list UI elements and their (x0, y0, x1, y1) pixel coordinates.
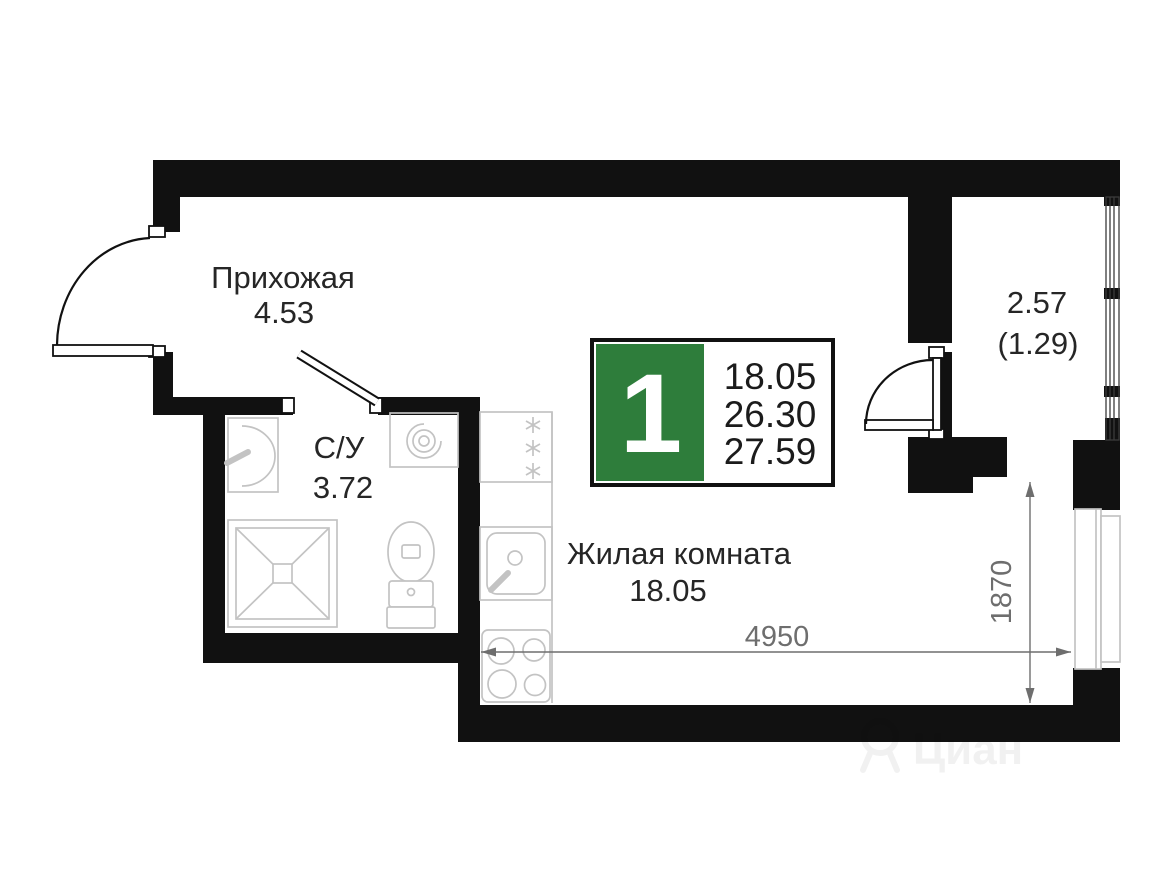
balcony-area: 2.57 (1007, 285, 1067, 320)
wall-below-balcony (908, 437, 1007, 477)
floor-plan-page: Прихожая 4.53 С/У 3.72 Жилая комната 18.… (0, 0, 1173, 880)
door-swing-arc (57, 238, 150, 345)
door-jamb (149, 226, 165, 237)
door-frame (933, 358, 941, 430)
dimension-arrow-right (1056, 648, 1071, 657)
washing-machine-icon (390, 413, 458, 467)
window-icon (1075, 509, 1120, 669)
door-jamb (282, 398, 294, 413)
dimension-arrow-down (1026, 688, 1035, 703)
floor-plan: Прихожая 4.53 С/У 3.72 Жилая комната 18.… (0, 0, 1173, 880)
dimension-arrow-up (1026, 482, 1035, 497)
bathroom-door-icon (282, 354, 382, 413)
info-badge-rooms-count: 1 (620, 351, 682, 476)
info-badge: 1 18.05 26.30 27.59 (592, 340, 833, 485)
dimension-horizontal-value: 4950 (745, 621, 810, 653)
washbasin-icon (227, 418, 278, 492)
toilet-icon (387, 522, 435, 628)
dimension-horizontal: 4950 (481, 621, 1071, 657)
hallway-label: Прихожая (211, 260, 355, 295)
dimension-vertical-value: 1870 (986, 560, 1018, 625)
glazing-frame (1106, 197, 1119, 440)
living-room-area: 18.05 (629, 573, 707, 608)
window-pane-inner (1075, 509, 1101, 669)
wall-right-below-window (1073, 668, 1120, 742)
wall-below-balcony-step (908, 477, 973, 493)
window-pane-outer (1101, 516, 1120, 662)
bathroom-area: 3.72 (313, 470, 373, 505)
door-leaf (865, 420, 933, 430)
balcony-glazing-icon (1106, 197, 1119, 440)
wall-bathroom-left (203, 415, 225, 663)
door-swing-arc (866, 360, 933, 424)
snowflake-icon (526, 440, 540, 456)
wall-kitchen-side (458, 397, 480, 742)
living-room-label: Жилая комната (567, 536, 792, 571)
balcony-area-secondary: (1.29) (998, 326, 1079, 361)
balcony-door-icon (865, 347, 944, 439)
wall-right-above-window (1073, 440, 1120, 510)
wall-hallway-bottom-left (153, 397, 293, 415)
bathroom-label: С/У (314, 430, 365, 465)
wall-bathroom-bottom (203, 633, 480, 663)
dimension-vertical: 1870 (986, 482, 1035, 703)
info-badge-total-area: 27.59 (724, 431, 817, 472)
info-badge-area-no-balcony: 26.30 (724, 394, 817, 435)
wall-top (153, 160, 1120, 197)
entrance-door-icon (53, 226, 165, 357)
hallway-area: 4.53 (254, 295, 314, 330)
fridge-icon (480, 412, 552, 482)
watermark-text: Циан (913, 725, 1023, 774)
info-badge-living-area: 18.05 (724, 356, 817, 397)
door-leaf (53, 345, 153, 356)
door-leaf-fill (299, 354, 377, 402)
kitchen-sink-icon (480, 527, 552, 600)
snowflake-icon (526, 417, 540, 433)
wall-left-upper (153, 160, 180, 232)
shower-icon (228, 520, 337, 627)
door-jamb (929, 347, 944, 358)
wall-balcony-separator (908, 197, 952, 343)
stove-icon (482, 630, 550, 702)
snowflake-icon (526, 463, 540, 479)
